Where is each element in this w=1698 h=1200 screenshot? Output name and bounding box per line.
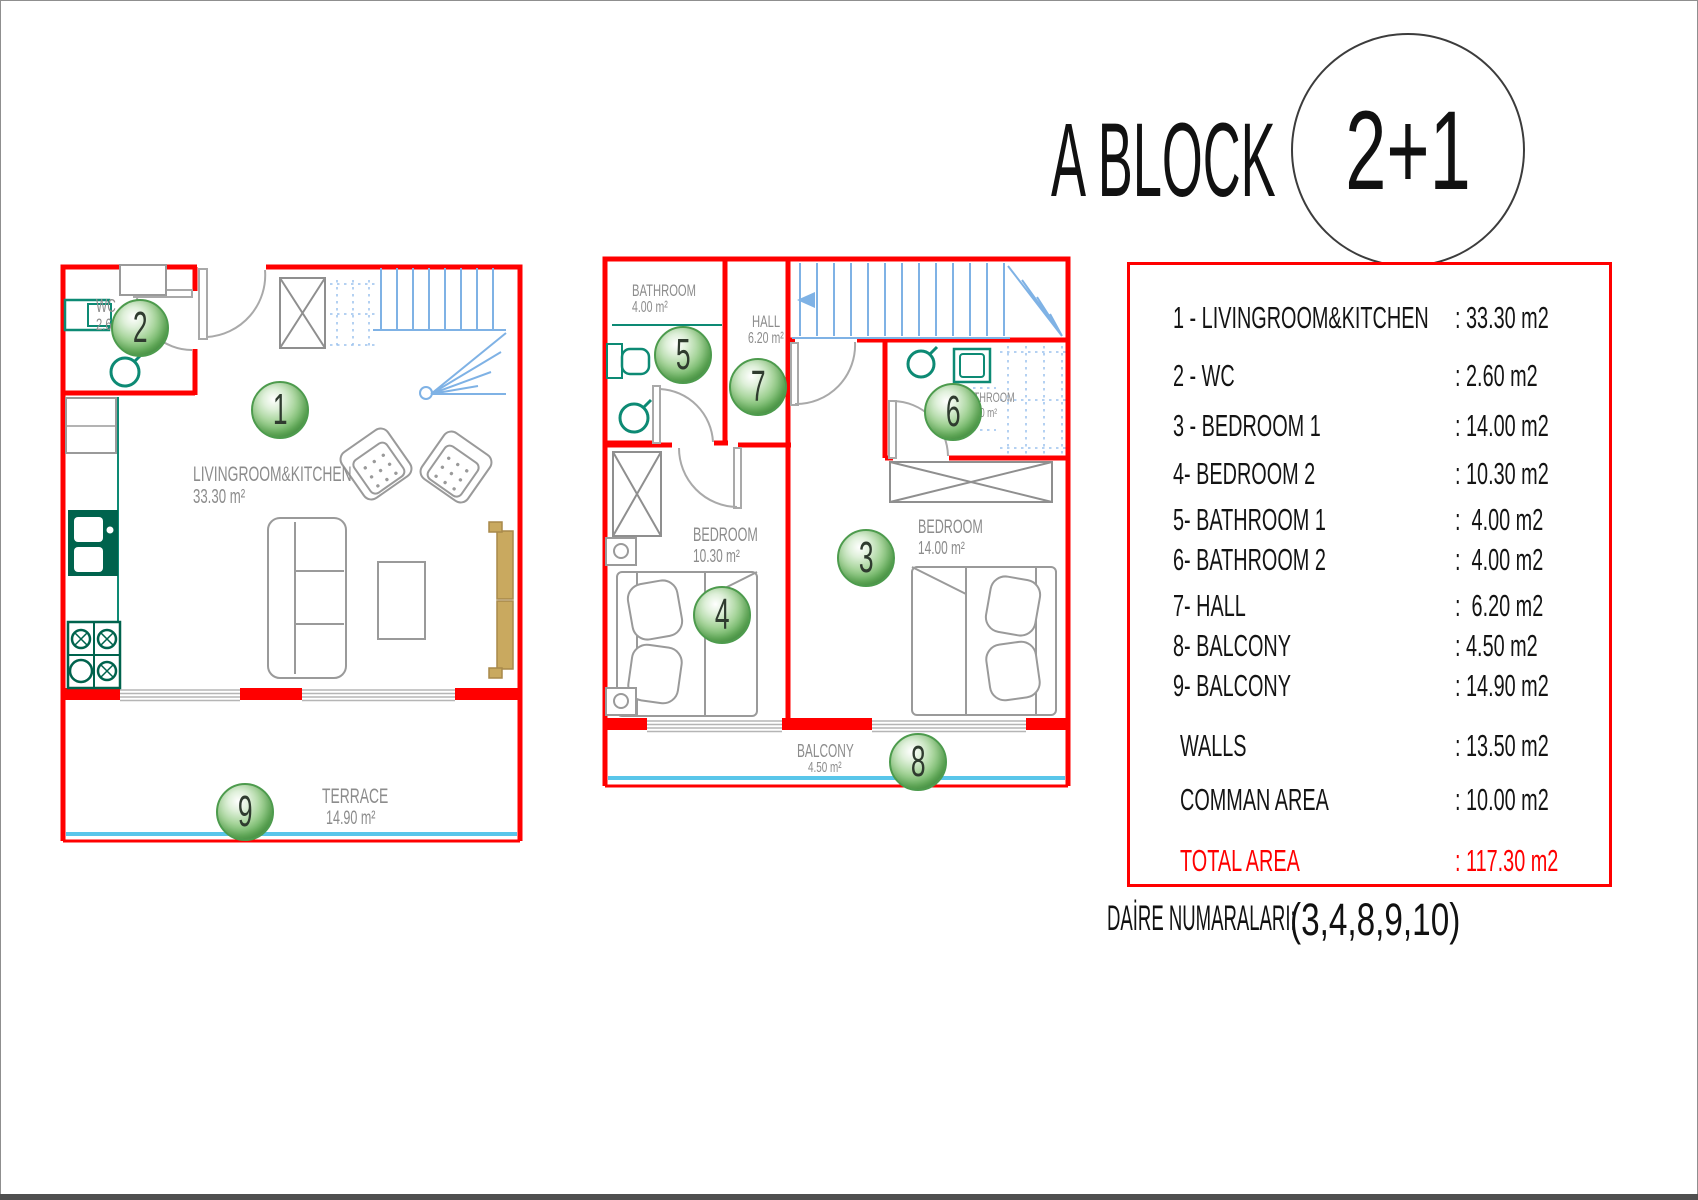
- legend-total-value: : 117.30 m2: [1455, 845, 1558, 876]
- legend-row-label: 9- BALCONY: [1173, 670, 1291, 701]
- room-badge-bathroom2: 6: [924, 383, 982, 441]
- room-badge-bedroom2: 4: [693, 586, 751, 644]
- legend-row-label: WALLS: [1180, 730, 1247, 761]
- legend-row-label: 1 - LIVINGROOM&KITCHEN: [1173, 302, 1429, 333]
- room-badge-wc: 2: [111, 299, 169, 357]
- unit-type-circle: 2+1: [1291, 33, 1525, 267]
- legend-row-label: 6- BATHROOM 2: [1173, 544, 1326, 575]
- legend-row-value: : 33.30 m2: [1455, 302, 1549, 333]
- sofa: [268, 518, 346, 678]
- legend-row-value: : 13.50 m2: [1455, 730, 1549, 761]
- room-badge-living: 1: [251, 381, 309, 439]
- coffee-table: [378, 562, 425, 639]
- bathroom1-area: 4.00 m²: [632, 300, 668, 316]
- legend-row-label: 5- BATHROOM 1: [1173, 504, 1326, 535]
- room-badge-balcony: 8: [889, 733, 947, 791]
- legend-row-label: 3 - BEDROOM 1: [1173, 410, 1321, 441]
- stove: [68, 622, 120, 688]
- legend-row-label: COMMAN AREA: [1180, 784, 1329, 815]
- living-area: 33.30 m²: [193, 487, 245, 507]
- unit-type: 2+1: [1345, 86, 1470, 215]
- legend-row-value: : 4.50 m2: [1455, 630, 1538, 661]
- wardrobes: [613, 452, 1052, 536]
- legend-row-label: 7- HALL: [1173, 590, 1246, 621]
- legend-row-value: : 4.00 m2: [1455, 544, 1543, 575]
- bedroom2-area: 10.30 m²: [693, 547, 740, 565]
- legend-row-label: 4- BEDROOM 2: [1173, 458, 1315, 489]
- room-badge-hall: 7: [729, 358, 787, 416]
- legend-row-value: : 14.00 m2: [1455, 410, 1549, 441]
- room-badge-bathroom1: 5: [654, 326, 712, 384]
- legend-row-label: 8- BALCONY: [1173, 630, 1291, 661]
- hall-area: 6.20 m²: [748, 331, 784, 347]
- bathroom1-label: BATHROOM: [632, 282, 696, 299]
- living-label: LIVINGROOM&KITCHEN: [193, 464, 352, 485]
- legend-table: 1 - LIVINGROOM&KITCHEN : 33.30 m2 2 - WC…: [1127, 262, 1612, 887]
- bathroom1-fixtures: [607, 344, 651, 432]
- room-badge-bedroom1: 3: [837, 529, 895, 587]
- apartment-numbers-value: (3,4,8,9,10): [1290, 897, 1460, 942]
- legend-total-label: TOTAL AREA: [1180, 845, 1300, 876]
- apartment-numbers-label: DAİRE NUMARALARI:: [1107, 901, 1296, 936]
- balcony-label: BALCONY: [797, 742, 854, 760]
- balcony-area: 4.50 m²: [808, 760, 842, 775]
- terrace-label: TERRACE: [322, 786, 388, 807]
- wc-cistern: [120, 265, 166, 295]
- beds: [606, 538, 1056, 716]
- bottom-border-band: [0, 1194, 1698, 1200]
- room-badge-terrace: 9: [216, 783, 274, 841]
- legend-row-value: : 6.20 m2: [1455, 590, 1543, 621]
- block-title: A BLOCK: [1051, 108, 1276, 213]
- legend-row-value: : 4.00 m2: [1455, 504, 1543, 535]
- terrace-area: 14.90 m²: [326, 809, 375, 828]
- armchair: [417, 428, 495, 506]
- stairs-upper: [792, 263, 1062, 338]
- hall-label: HALL: [752, 313, 780, 330]
- legend-row-value: : 14.90 m2: [1455, 670, 1549, 701]
- legend-row-value: : 10.30 m2: [1455, 458, 1549, 489]
- bedroom2-label: BEDROOM: [693, 526, 758, 545]
- stairs-dashed: [330, 280, 376, 348]
- kitchen-sink: [68, 510, 118, 576]
- legend-row-value: : 2.60 m2: [1455, 360, 1538, 391]
- tv-unit: [489, 522, 513, 678]
- wc-label: WC: [96, 297, 116, 315]
- stairs-lower: [373, 268, 506, 399]
- bedroom1-area: 14.00 m²: [918, 539, 965, 557]
- bedroom1-label: BEDROOM: [918, 518, 983, 537]
- legend-row-value: : 10.00 m2: [1455, 784, 1549, 815]
- bathroom2-fixtures: [908, 347, 990, 382]
- legend-row-label: 2 - WC: [1173, 360, 1235, 391]
- shaft-box: [280, 278, 325, 348]
